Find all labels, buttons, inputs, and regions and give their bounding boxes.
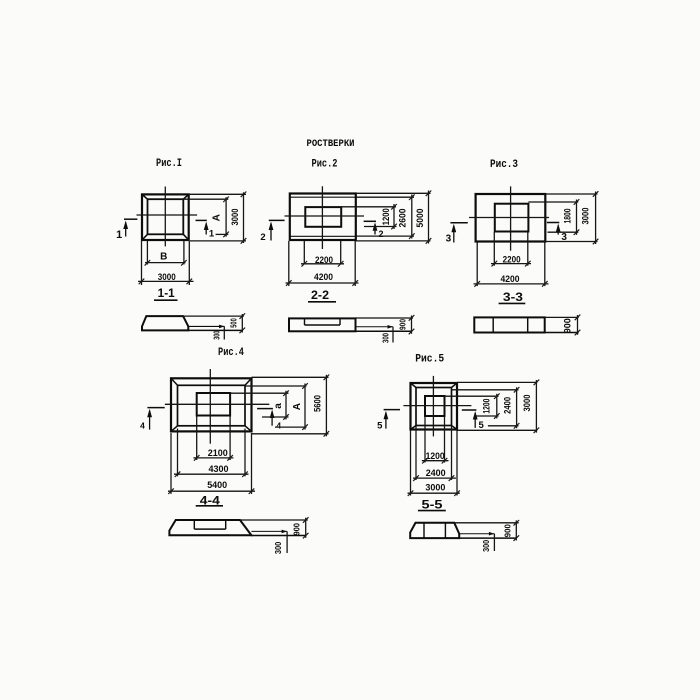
- svg-text:2400: 2400: [502, 397, 512, 414]
- svg-text:300: 300: [212, 331, 222, 340]
- svg-text:900: 900: [502, 524, 512, 537]
- svg-text:А: А: [212, 214, 223, 221]
- svg-text:2200: 2200: [503, 255, 521, 266]
- svg-text:В: В: [160, 252, 167, 263]
- svg-text:4200: 4200: [501, 274, 520, 285]
- svg-text:900: 900: [398, 319, 408, 330]
- svg-text:1: 1: [116, 229, 122, 241]
- svg-text:2: 2: [378, 229, 383, 239]
- svg-text:2200: 2200: [315, 255, 333, 266]
- svg-text:5400: 5400: [207, 480, 227, 491]
- svg-text:2600: 2600: [398, 209, 408, 228]
- svg-text:Рис.5: Рис.5: [415, 354, 444, 366]
- svg-text:а: а: [273, 403, 284, 409]
- svg-text:500: 500: [229, 318, 239, 328]
- svg-text:5600: 5600: [312, 395, 322, 412]
- svg-text:5: 5: [478, 420, 484, 431]
- svg-text:2: 2: [260, 232, 265, 243]
- svg-text:Рис.2: Рис.2: [312, 159, 338, 171]
- svg-text:1: 1: [209, 229, 215, 240]
- svg-text:5000: 5000: [415, 209, 425, 228]
- svg-text:300: 300: [380, 333, 390, 343]
- svg-text:1200: 1200: [426, 451, 445, 462]
- svg-text:900: 900: [292, 523, 302, 536]
- svg-text:1200: 1200: [381, 208, 391, 225]
- svg-text:1-1: 1-1: [158, 288, 176, 300]
- svg-text:300: 300: [273, 541, 283, 554]
- svg-text:2400: 2400: [426, 468, 446, 479]
- svg-text:900: 900: [563, 318, 573, 333]
- svg-text:3000: 3000: [158, 272, 176, 283]
- svg-text:2-2: 2-2: [311, 290, 329, 302]
- svg-text:Рис.4: Рис.4: [218, 347, 244, 359]
- svg-text:1200: 1200: [482, 399, 492, 414]
- svg-text:Рис.I: Рис.I: [156, 158, 182, 170]
- svg-text:РОСТВЕРКИ: РОСТВЕРКИ: [307, 138, 355, 150]
- svg-text:3000: 3000: [230, 209, 240, 226]
- svg-text:4: 4: [140, 420, 145, 430]
- svg-text:5-5: 5-5: [422, 500, 444, 512]
- svg-text:3000: 3000: [522, 395, 532, 412]
- svg-text:4300: 4300: [209, 464, 229, 475]
- svg-text:4: 4: [276, 420, 281, 430]
- svg-text:3-3: 3-3: [503, 292, 523, 304]
- svg-text:300: 300: [481, 540, 491, 552]
- svg-text:Рис.3: Рис.3: [490, 159, 518, 171]
- svg-text:5: 5: [377, 421, 383, 432]
- svg-text:3000: 3000: [581, 208, 591, 225]
- svg-text:1800: 1800: [562, 209, 572, 224]
- svg-text:3: 3: [446, 234, 452, 245]
- svg-text:3000: 3000: [425, 483, 445, 494]
- svg-text:А: А: [292, 403, 303, 410]
- svg-text:2100: 2100: [208, 448, 228, 459]
- svg-text:4200: 4200: [314, 272, 333, 283]
